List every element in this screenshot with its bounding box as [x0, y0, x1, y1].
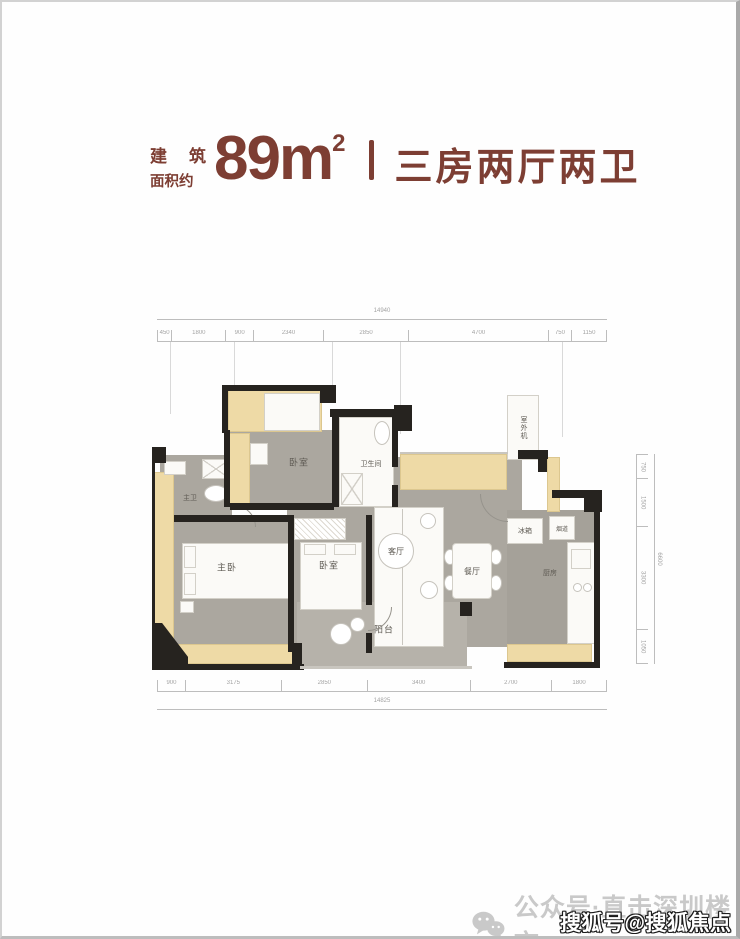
wall-segment — [230, 503, 334, 510]
title-prefix-char1: 建 — [150, 148, 167, 167]
window-strip-kitchen — [507, 644, 592, 662]
flue-box: 烟道 — [549, 516, 575, 540]
dim-right-segments: 750 1500 3300 1050 — [636, 454, 648, 664]
layout-text: 三房两厅两卫 — [394, 136, 640, 191]
wall-segment — [288, 522, 294, 652]
room-label-living: 客厅 — [379, 534, 413, 568]
living-rug: 客厅 — [378, 533, 414, 569]
wall-segment — [224, 430, 230, 507]
area-superscript: 2 — [332, 130, 345, 157]
wall-segment — [504, 662, 600, 668]
room-label-kitchen: 厨房 — [543, 568, 557, 578]
wall-segment — [152, 447, 166, 463]
room-label-bedroom2: 卧室 — [319, 559, 339, 572]
label-fridge: 冰箱 — [508, 519, 542, 543]
floorplan-drawing: 卧室 卫生间 室外机 主卫 主卧 卧室 客厅 — [152, 385, 612, 670]
dim-bottom-seg-1: 3175 — [186, 680, 282, 691]
wall-segment — [222, 385, 228, 433]
wall-segment — [460, 602, 472, 616]
dresser-bedroom3 — [250, 443, 268, 465]
room-label-master-bedroom: 主卧 — [217, 561, 237, 574]
wall-segment — [222, 385, 326, 391]
dim-right-seg-1: 1500 — [637, 479, 648, 527]
dim-bottom-seg-2: 2850 — [282, 680, 368, 691]
area-number: 89m — [214, 124, 332, 193]
dim-top-seg-5: 4700 — [409, 330, 549, 341]
dim-bottom-total-value: 14825 — [374, 698, 391, 704]
label-flue: 烟道 — [550, 517, 574, 539]
room-label-ac-unit: 室外机 — [518, 416, 528, 440]
dim-right-seg-2: 3300 — [637, 527, 648, 631]
dim-bottom-seg-4: 2700 — [471, 680, 553, 691]
dim-bottom-segments: 900 3175 2850 3400 2700 1800 — [157, 680, 607, 692]
wall-segment — [594, 510, 600, 665]
wall-segment — [366, 633, 372, 653]
title-prefix-line2: 面积约 — [150, 170, 206, 191]
title-prefix-char2: 筑 — [189, 148, 206, 167]
dim-bottom-seg-0: 900 — [158, 680, 186, 691]
dining-table: 餐厅 — [452, 543, 492, 599]
title-prefix-line1: 建 筑 — [150, 148, 206, 167]
window-strip-top — [400, 454, 507, 490]
title-prefix: 建 筑 面积约 — [150, 148, 206, 191]
sink-master-bath — [164, 461, 186, 475]
pillow — [184, 546, 196, 568]
nightstand — [180, 601, 194, 613]
dim-top-seg-2: 900 — [226, 330, 254, 341]
title-divider — [369, 140, 374, 180]
dim-top-total-value: 14940 — [374, 308, 391, 314]
wall-segment — [174, 515, 294, 522]
dim-right-total-value: 6600 — [656, 552, 662, 565]
stove — [571, 549, 591, 569]
wechat-icon — [472, 909, 505, 939]
window-line — [400, 452, 508, 454]
wall-segment — [320, 385, 336, 403]
window-strip-right — [547, 457, 560, 512]
room-label-master-bath: 主卫 — [183, 493, 197, 503]
dim-right-total: 6600 — [654, 454, 664, 664]
washer — [330, 623, 352, 645]
wardrobe-bedroom2 — [294, 518, 346, 540]
dim-top-seg-4: 2850 — [324, 330, 409, 341]
dim-bottom-total: 14825 — [157, 698, 607, 710]
dim-top-seg-7: 1150 — [572, 330, 607, 341]
dim-top-segments: 450 1800 900 2340 2850 4700 750 1150 — [157, 330, 607, 342]
pillow — [304, 544, 326, 555]
wall-segment — [366, 515, 372, 605]
title-block: 建 筑 面积约 89m2 三房两厅两卫 — [150, 128, 640, 191]
floorplan-page: 建 筑 面积约 89m2 三房两厅两卫 14940 450 1800 900 2… — [0, 0, 740, 939]
wall-segment — [392, 485, 398, 507]
wall-segment — [538, 459, 547, 472]
decor-circle — [420, 513, 436, 529]
dim-bottom-seg-5: 1800 — [552, 680, 607, 691]
dim-right-seg-3: 1050 — [637, 630, 648, 664]
sohu-watermark: 搜狐号@搜狐焦点鞍山站 — [560, 907, 736, 939]
room-label-bathroom: 卫生间 — [361, 459, 382, 469]
toilet-bathroom — [374, 421, 390, 445]
dim-top-total: 14940 — [157, 308, 607, 320]
washer-small — [350, 617, 365, 632]
dim-bottom-seg-3: 3400 — [368, 680, 471, 691]
wall-segment — [518, 450, 548, 459]
fridge-box: 冰箱 — [507, 518, 543, 544]
dim-top-seg-6: 750 — [549, 330, 572, 341]
dim-top-seg-3: 2340 — [254, 330, 324, 341]
kitchen-sink — [583, 583, 592, 592]
wall-segment — [330, 409, 398, 417]
extension-line — [332, 342, 333, 390]
wall-segment — [392, 417, 398, 467]
room-label-bedroom3: 卧室 — [289, 456, 309, 469]
kitchen-sink — [573, 583, 582, 592]
dim-right-seg-0: 750 — [637, 454, 648, 479]
dim-top-seg-1: 1800 — [172, 330, 226, 341]
wall-segment — [152, 463, 155, 643]
pillow — [184, 573, 196, 595]
plant — [420, 581, 438, 599]
furniture-line — [402, 509, 403, 645]
room-label-dining: 餐厅 — [453, 544, 491, 598]
dim-top-seg-0: 450 — [158, 330, 172, 341]
wall-segment — [332, 413, 339, 507]
pillow — [334, 544, 356, 555]
shower-bathroom — [341, 473, 363, 505]
bed-bedroom3 — [264, 393, 320, 431]
bay-window-left — [152, 472, 174, 644]
area-value: 89m2 — [214, 128, 345, 190]
balcony-railing — [300, 666, 472, 669]
